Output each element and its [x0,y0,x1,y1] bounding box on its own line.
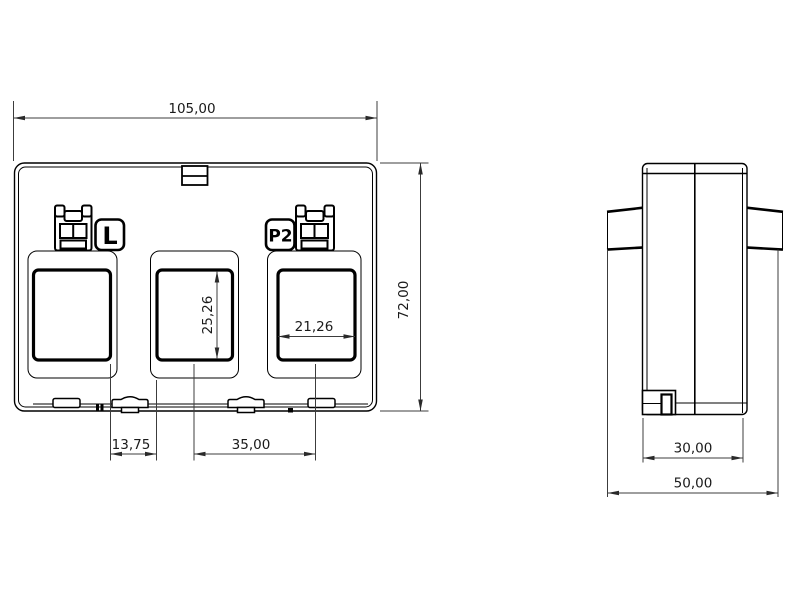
terminal-prong [55,206,65,217]
dimension-overall-height: 72,00 [380,163,429,411]
dimension-overall-width: 105,00 [14,101,378,161]
flange-right-face [746,208,783,250]
terminal-prong [82,206,92,217]
din-clip-slider [662,395,672,415]
dimension-body-width: 30,00 [643,418,743,463]
dim-overall-height-label: 72,00 [396,281,412,320]
foot-flat-left [53,399,80,408]
dimension-window-width: 21,26 [278,319,355,339]
terminal-label-right: P2 [268,227,292,247]
terminal-connector-right [296,206,334,251]
housing-inner-outline [19,167,373,407]
terminal-label-right-badge: P2 [266,220,295,251]
terminal-slot [65,211,83,221]
strip-mark [96,405,99,411]
dim-overall-width-label: 105,00 [168,101,215,117]
housing-outer-outline [15,163,377,411]
dim-window-height-label: 25,26 [200,296,216,335]
foot-bump-left [112,397,148,408]
dimension-window-height: 25,26 [200,271,219,359]
terminal-label-left-badge: L [96,220,125,251]
side-view-dimensions: 30,00 50,00 [608,418,779,495]
window-left-opening [34,270,111,360]
technical-drawing: L P2 [0,0,800,600]
foot-bump-right [228,397,264,408]
dim-window-spacing-label: 35,00 [232,437,271,453]
flange-left-face [608,208,645,250]
terminal-connector-left [55,206,92,251]
foot-notch-right [238,408,255,413]
terminal-prong [296,206,306,217]
drawing-canvas: L P2 [0,0,800,600]
foot-flat-right [308,399,335,408]
dim-overall-depth-label: 50,00 [674,476,713,492]
strip-mark [101,405,104,411]
terminal-label-left: L [102,222,117,250]
window-middle-opening [157,270,233,360]
terminal-slot [306,211,324,221]
dim-window-width-label: 21,26 [295,319,334,335]
dim-window-edge-gap-label: 13,75 [112,437,151,453]
dimension-overall-depth: 50,00 [608,476,779,496]
front-view: L P2 [15,163,377,413]
strip-mark [288,408,293,413]
window-right-opening [278,270,355,360]
terminal-notch [61,241,87,249]
dim-body-width-label: 30,00 [674,441,713,457]
terminal-prong [325,206,335,217]
terminal-notch [302,241,328,249]
foot-notch-left [122,408,139,413]
